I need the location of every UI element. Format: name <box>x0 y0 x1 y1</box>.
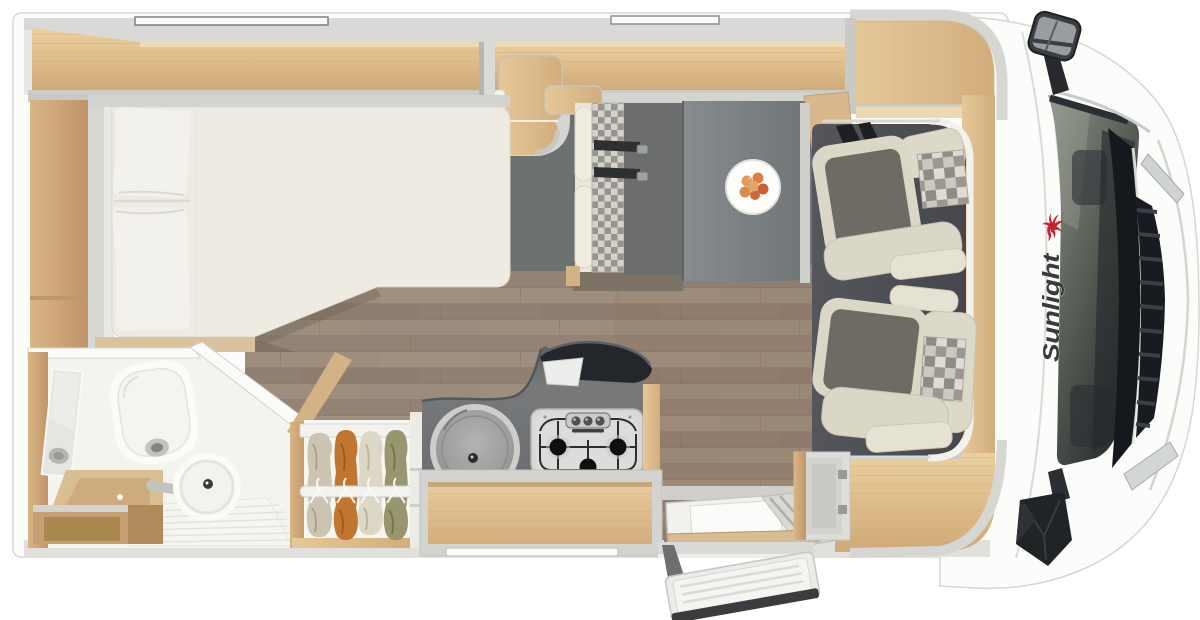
svg-text:Sunlight: Sunlight <box>1039 252 1064 362</box>
